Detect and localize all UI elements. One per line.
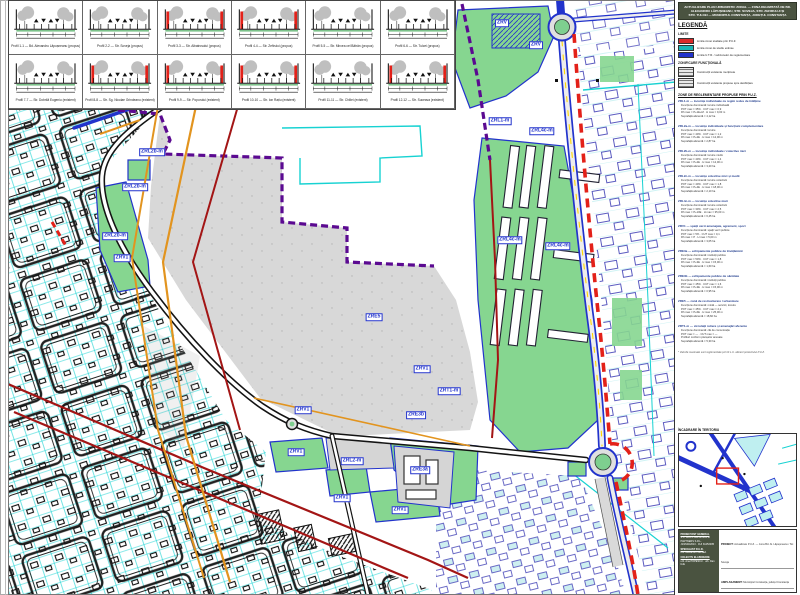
regulation-zone-group: ZRE5 — zonă de restructurare / urbanizar… <box>678 299 797 318</box>
legend-zoning-items: Construcții existente menținuteConstrucț… <box>678 66 797 89</box>
regulation-zone-code: ZRL2a-m — locuințe individuale și funcți… <box>678 124 797 128</box>
legend-panel: ACTUALIZARE PLAN URBANISTIC ZONAL — ZONA… <box>674 0 800 595</box>
regulation-zone-code: ZRL1-m — locuințe individuale cu regim r… <box>678 99 797 103</box>
location-inset-map <box>678 433 797 527</box>
regulation-zone-line: Suprafață aferentă = 2,10 ha <box>681 190 797 194</box>
profile-caption: Profil 5-5 — Str. Mircea cel Bătrân (pro… <box>313 45 374 49</box>
roundabout-mini <box>287 419 298 430</box>
title-block-field: AMPLASAMENT: Municipiul Constanța, județ… <box>721 569 794 589</box>
street-profile-cell: Profil 9-9 — Str. Poporului (existent) <box>158 55 232 109</box>
field-value: Municipiul Constanța, județul Constanța <box>743 581 789 584</box>
regulation-zone-group: ZRE3b — echipamente publice de sănătateF… <box>678 274 797 293</box>
regulation-zone-group: ZRV1 — spații verzi amenajate, agrement,… <box>678 224 797 243</box>
regulation-zone-line: Suprafață aferentă = 18,60 ha <box>681 315 797 319</box>
sheet-title-line2: STR. TULCEI — MUNICIPIUL CONSTANȚA, JUDE… <box>681 13 794 17</box>
regulation-zone-group: ZRL1-m — locuințe individuale cu regim r… <box>678 99 797 118</box>
inset-map-drawing <box>679 434 796 526</box>
sheet-title: ACTUALIZARE PLAN URBANISTIC ZONAL — ZONA… <box>678 2 797 20</box>
roundabout-south <box>589 448 617 476</box>
regulation-zone-line: Suprafață aferentă = 1,60 ha <box>681 265 797 269</box>
title-block-designer-line: J13/644/2013 · CUI 31253035 <box>681 543 718 546</box>
street-profile-diagram <box>381 55 454 99</box>
title-block-designer-line: S.C. MAS PUBLISHING & PARTNERS S.R.L. <box>681 536 718 543</box>
title-block-field: BENEFICIAR: Primăria Municipiului Consta… <box>721 589 794 592</box>
legend-limit-items: Limita zonei studiate prin P.U.Z.Limita … <box>678 37 797 59</box>
title-block: PROIECTANT GENERALS.C. MAS PUBLISHING & … <box>678 529 797 593</box>
regulation-zone-group: ZRL2a-m — locuințe individuale și funcți… <box>678 124 797 143</box>
street-profile-cell: Profil 2-2 — Str. Soveja (propus) <box>83 1 157 55</box>
regulation-zone-group: ZRL2c-m — locuințe colective mici și med… <box>678 174 797 193</box>
field-key: PROIECT: <box>721 543 734 546</box>
profile-caption: Profil 11-11 — Str. Chiliei (existent) <box>318 99 367 103</box>
legend-swatch <box>678 38 694 44</box>
legend-item: Construcții existente menținute <box>678 67 797 77</box>
legend-swatch <box>678 52 694 58</box>
legend-item-label: Limita zonei studiate prin P.U.Z. <box>697 40 736 43</box>
street-profile-diagram <box>83 55 156 99</box>
legend-swatch <box>678 78 694 88</box>
street-profiles-panel: Profil 1-1 — Bd. Alexandru Lăpușneanu (p… <box>8 0 456 110</box>
legend-item: Limita zonei studiate prin P.U.Z. <box>678 38 797 44</box>
street-profile-diagram <box>306 55 379 99</box>
legend-item: Construcții existente propuse spre desfi… <box>678 78 797 88</box>
street-profile-cell: Profil 10-10 — Str. Ion Rațiu (existent) <box>232 55 306 109</box>
regulation-zone-code: ZRL2b-m — locuințe individuale / colecti… <box>678 149 797 153</box>
title-block-designer: PROIECTANT GENERALS.C. MAS PUBLISHING & … <box>679 530 719 592</box>
title-block-field: PROIECT: Actualizare P.U.Z. — zona Bd. A… <box>721 531 794 569</box>
profile-caption: Profil 1-1 — Bd. Alexandru Lăpușneanu (p… <box>11 45 80 49</box>
street-profile-cell: Profil 4-4 — Str. Zefirului (propus) <box>232 1 306 55</box>
regulation-zone-code: ZRV1 — spații verzi amenajate, agrement,… <box>678 224 797 228</box>
plan-sheet: ZRL2b-mZRL2b-mZRL2b-mZRV1ZRE5ZRV1ZRT1-mZ… <box>0 0 800 595</box>
street-profile-diagram <box>9 55 82 99</box>
legend-swatch <box>678 45 694 51</box>
regulations-title: ZONE DE REGLEMENTARE PROPUSE PRIN P.U.Z. <box>678 93 797 97</box>
street-profile-cell: Profil 12-12 — Str. Suceava (existent) <box>381 55 455 109</box>
legend-zones: ZRL1-m — locuințe individuale cu regim r… <box>678 99 797 349</box>
sheet-title-line1: ACTUALIZARE PLAN URBANISTIC ZONAL — ZONA… <box>681 5 794 13</box>
street-profile-diagram <box>9 1 82 45</box>
regulation-zone-code: ZRE5 — zonă de restructurare / urbanizar… <box>678 299 797 303</box>
legend-item: Limita zonei de studiu extinse <box>678 45 797 51</box>
street-profile-diagram <box>232 55 305 99</box>
street-profile-cell: Profil 11-11 — Str. Chiliei (existent) <box>306 55 380 109</box>
street-profile-diagram <box>158 55 231 99</box>
title-block-designer-line: urb. Ana POPESCU · urb. Dan ILIE <box>681 560 718 567</box>
regulation-zone-line: Suprafață aferentă = 6,45 ha <box>681 215 797 219</box>
profiles-grid: Profil 1-1 — Bd. Alexandru Lăpușneanu (p… <box>9 1 455 109</box>
street-profile-diagram <box>83 1 156 45</box>
regulation-zone-line: Suprafață aferentă = 3,05 ha <box>681 240 797 244</box>
field-key: AMPLASAMENT: <box>721 581 743 584</box>
legend-zoning-header: ZONIFICARE FUNCȚIONALĂ <box>678 61 797 65</box>
legend-item: Limita U.T.R. / subzonelor de reglementa… <box>678 52 797 58</box>
street-profile-diagram <box>158 1 231 45</box>
regulation-zone-line: Suprafață aferentă = 4,12 ha <box>681 115 797 119</box>
street-profile-cell: Profil 6-6 — Str. Tulcei (propus) <box>381 1 455 55</box>
regulation-zone-code: ZRL2c-m — locuințe colective mici și med… <box>678 174 797 178</box>
regulation-zone-code: ZRL4c-m — locuințe colective mari <box>678 199 797 203</box>
street-profile-cell: Profil 1-1 — Bd. Alexandru Lăpușneanu (p… <box>9 1 83 55</box>
regulation-zone-code: ZRE3a — echipamente publice de învățămân… <box>678 249 797 253</box>
regulation-zone-group: ZRE3a — echipamente publice de învățămân… <box>678 249 797 268</box>
legend-item-label: Construcții existente menținute <box>697 71 735 74</box>
roundabout-north <box>549 14 576 41</box>
profile-caption: Profil 12-12 — Str. Suceava (existent) <box>391 99 444 103</box>
title-block-fields: PROIECT: Actualizare P.U.Z. — zona Bd. A… <box>719 530 796 592</box>
scan-edge <box>5 0 6 595</box>
regulation-zone-group: ZRL4c-m — locuințe colective mariFuncțiu… <box>678 199 797 218</box>
legend-limits-header: LIMITE <box>678 32 797 36</box>
profile-caption: Profil 9-9 — Str. Poporului (existent) <box>169 99 220 103</box>
legend-item-label: Limita U.T.R. / subzonelor de reglementa… <box>697 54 750 57</box>
profile-caption: Profil 3-3 — Str. Albatrosului (propus) <box>168 45 221 49</box>
profile-caption: Profil 7-7 — Str. Dobrilă Eugeniu (exist… <box>16 99 76 103</box>
profile-caption: Profil 2-2 — Str. Soveja (propus) <box>97 45 143 49</box>
profile-caption: Profil 4-4 — Str. Zefirului (propus) <box>245 45 292 49</box>
profile-caption: Profil 8-8 — Str. Sg. Nicolae Grindeanu … <box>85 99 154 103</box>
street-profile-cell: Profil 8-8 — Str. Sg. Nicolae Grindeanu … <box>83 55 157 109</box>
legend-item-label: Construcții existente propuse spre desfi… <box>697 82 753 85</box>
regulation-zone-line: Suprafață aferentă = 2,87 ha <box>681 140 797 144</box>
legend-title: LEGENDĂ <box>678 23 797 29</box>
regulation-zone-line: Suprafață aferentă = 0,95 ha <box>681 290 797 294</box>
legend-swatch <box>678 67 694 77</box>
inset-title: ÎNCADRARE ÎN TERITORIU <box>678 428 797 432</box>
street-profile-diagram <box>381 1 454 45</box>
title-block-designer-line: urb. Alexandru MANEA <box>681 551 718 554</box>
regulation-zone-line: Suprafață aferentă = 5,30 ha <box>681 340 797 344</box>
regulation-zone-code: ZRE3b — echipamente publice de sănătate <box>678 274 797 278</box>
street-profile-diagram <box>306 1 379 45</box>
legend-item-label: Limita zonei de studiu extinse <box>697 47 734 50</box>
profile-caption: Profil 6-6 — Str. Tulcei (propus) <box>395 45 439 49</box>
street-profile-cell: Profil 3-3 — Str. Albatrosului (propus) <box>158 1 232 55</box>
regulation-zone-code: ZRT1-m — circulații rutiere și amenajări… <box>678 324 797 328</box>
street-profile-diagram <box>232 1 305 45</box>
regulation-zone-line: Suprafață aferentă = 3,20 ha <box>681 165 797 169</box>
regulation-zone-group: ZRT1-m — circulații rutiere și amenajări… <box>678 324 797 343</box>
profile-caption: Profil 10-10 — Str. Ion Rațiu (existent) <box>242 99 296 103</box>
regulation-zone-group: ZRL2b-m — locuințe individuale / colecti… <box>678 149 797 168</box>
street-profile-cell: Profil 5-5 — Str. Mircea cel Bătrân (pro… <box>306 1 380 55</box>
street-profile-cell: Profil 7-7 — Str. Dobrilă Eugeniu (exist… <box>9 55 83 109</box>
